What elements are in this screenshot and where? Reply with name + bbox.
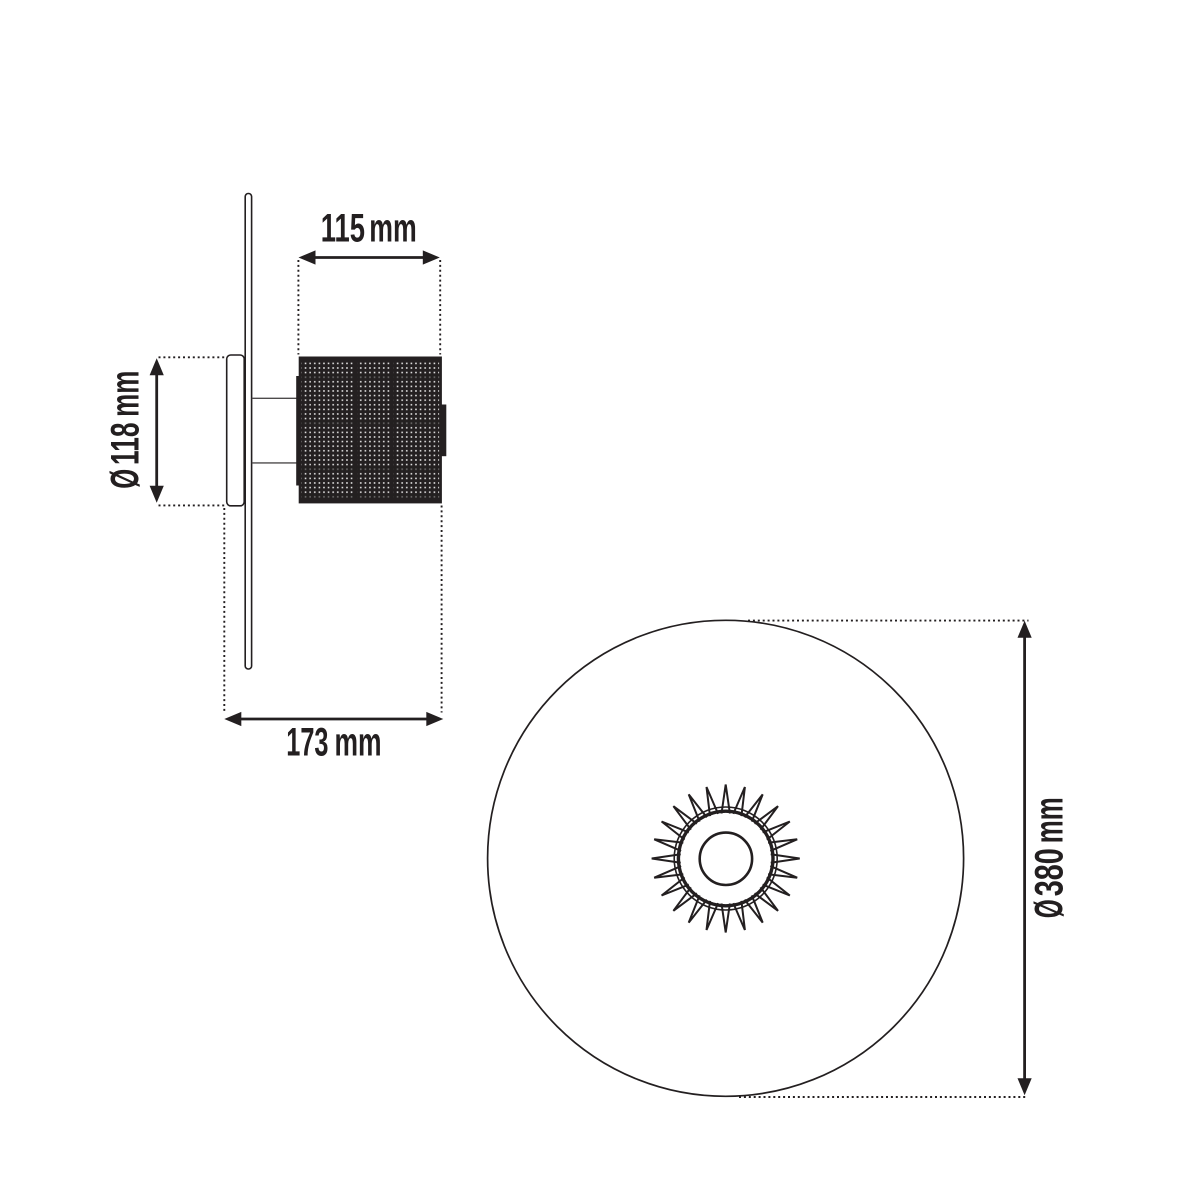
svg-text:Ø: Ø	[1027, 899, 1071, 918]
svg-text:mm: mm	[103, 371, 147, 417]
svg-text:380: 380	[1027, 848, 1071, 896]
svg-text:118: 118	[103, 423, 147, 466]
svg-text:mm: mm	[335, 721, 382, 765]
svg-text:115: 115	[321, 207, 365, 251]
svg-text:173: 173	[286, 721, 328, 765]
svg-text:mm: mm	[1027, 797, 1071, 843]
svg-text:mm: mm	[369, 207, 417, 251]
svg-text:Ø: Ø	[103, 469, 147, 489]
